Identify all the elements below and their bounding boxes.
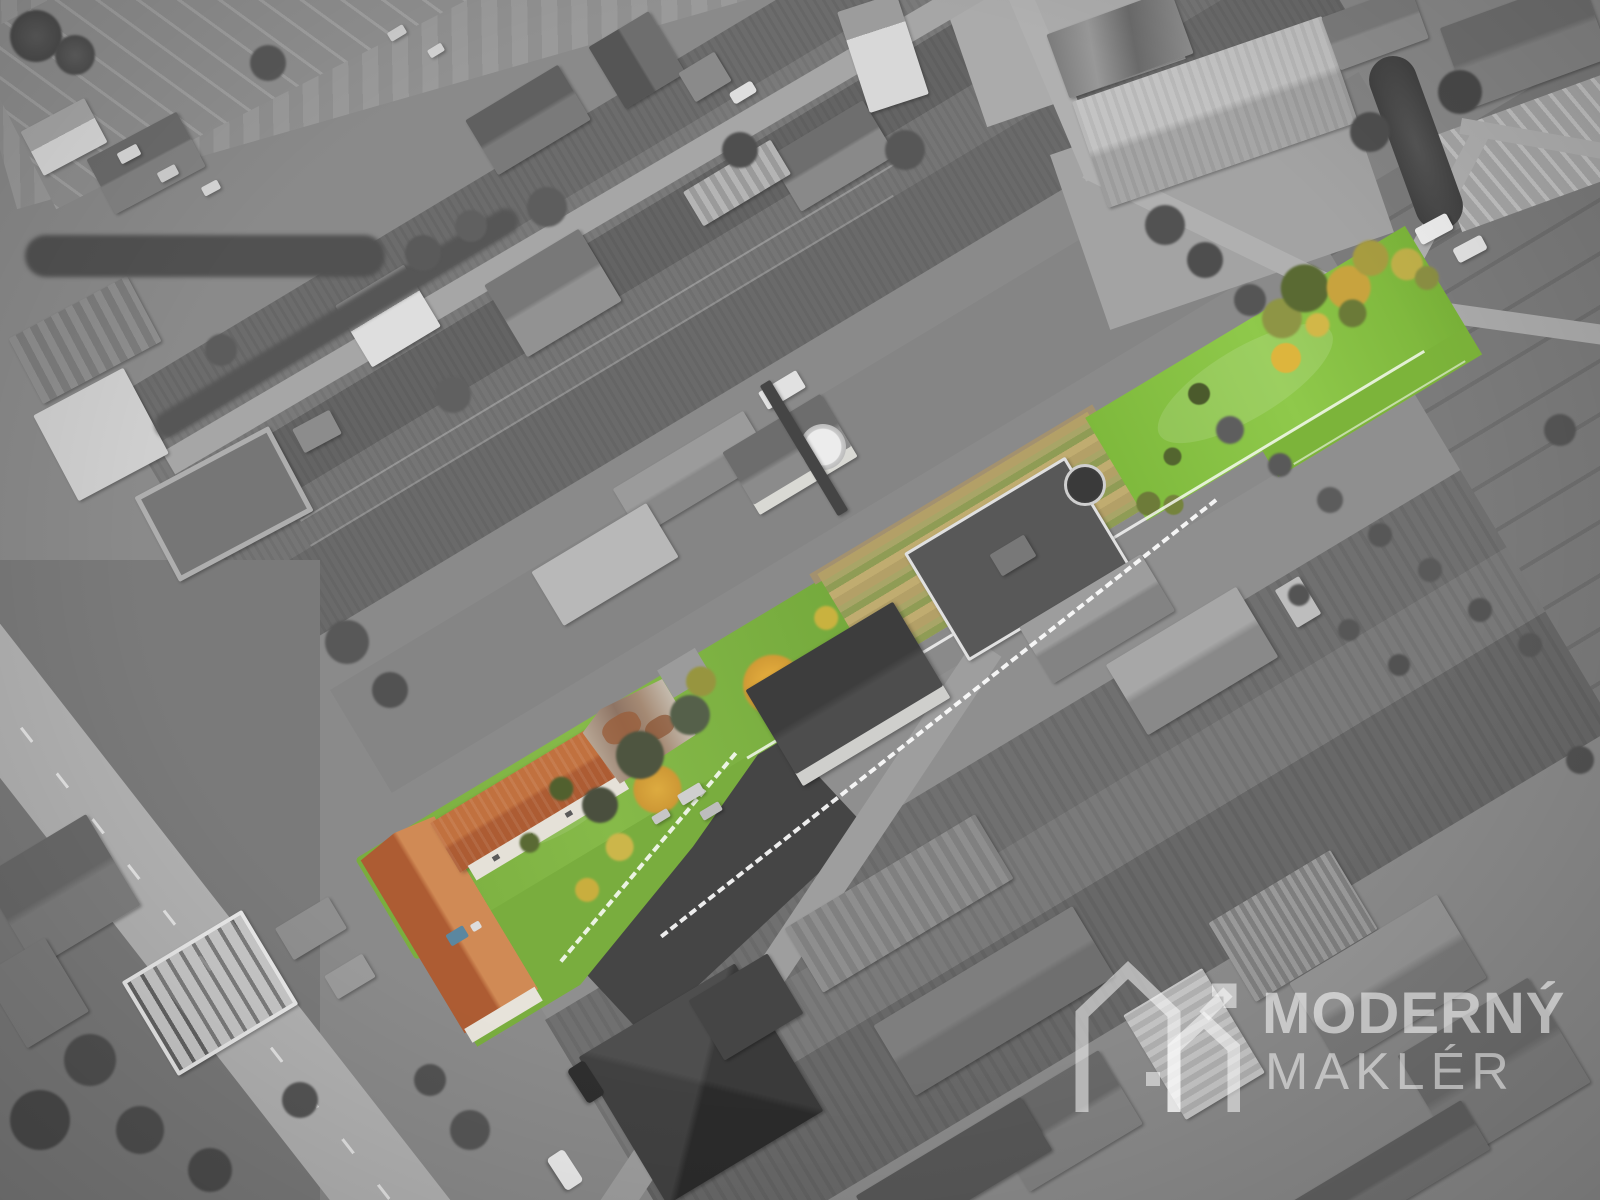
orchard-tree [1368, 523, 1392, 547]
orchard-tree [1518, 633, 1542, 657]
tree-dark-green [670, 695, 710, 735]
tree-dark-green [582, 787, 618, 823]
farm-house-roof [1321, 0, 1428, 70]
aerial-photo: MODERNÝ MAKLÉR [0, 0, 1600, 1200]
trampoline [1064, 464, 1106, 506]
tree [64, 1034, 116, 1086]
tree [1438, 70, 1482, 114]
tree [414, 1064, 446, 1096]
tree [455, 210, 487, 242]
brand-logo-icon [1070, 952, 1240, 1122]
tree [722, 132, 758, 168]
tree [325, 620, 369, 664]
orchard-tree [1388, 654, 1410, 676]
tree [188, 1148, 232, 1192]
tree [1566, 746, 1594, 774]
garden-shed [201, 179, 222, 196]
tree [1350, 112, 1390, 152]
tree [885, 130, 925, 170]
garden-shed [324, 954, 376, 1000]
tree [116, 1106, 164, 1154]
orchard-tree [1268, 453, 1292, 477]
tree [450, 1110, 490, 1150]
hedge-row [25, 235, 385, 277]
tree [405, 235, 441, 271]
orchard-tree [1468, 598, 1492, 622]
orchard-tree [1288, 584, 1310, 606]
brand-name: MODERNÝ [1262, 980, 1565, 1047]
tree [282, 1082, 318, 1118]
brand-subtitle: MAKLÉR [1265, 1042, 1515, 1102]
tree [1544, 414, 1576, 446]
tree-dark-green [616, 731, 664, 779]
orchard-tree [1418, 558, 1442, 582]
tree [1145, 205, 1185, 245]
orchard-tree [1338, 619, 1360, 641]
car [546, 1149, 583, 1192]
tree [1187, 242, 1223, 278]
tree [435, 377, 471, 413]
tree [10, 1090, 70, 1150]
tree [55, 35, 95, 75]
tree [1234, 284, 1266, 316]
tree [527, 187, 567, 227]
tree [372, 672, 408, 708]
tree [205, 334, 237, 366]
tree [250, 45, 286, 81]
watermark: MODERNÝ MAKLÉR [1062, 938, 1600, 1118]
orchard-tree [1216, 416, 1244, 444]
orchard-tree [1317, 487, 1343, 513]
